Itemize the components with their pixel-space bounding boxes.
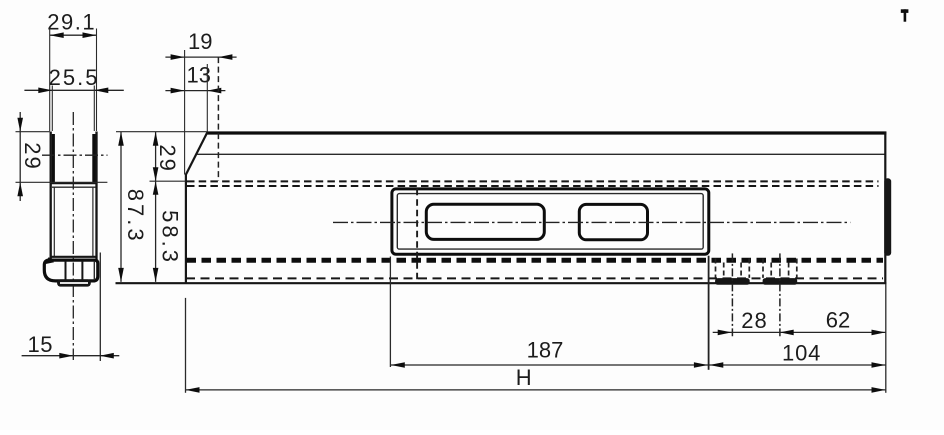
svg-text:29: 29 bbox=[155, 144, 180, 172]
svg-text:19: 19 bbox=[188, 29, 212, 54]
svg-text:29.1: 29.1 bbox=[47, 9, 96, 34]
svg-text:62: 62 bbox=[826, 307, 850, 332]
svg-text:15: 15 bbox=[27, 332, 52, 357]
svg-text:87.3: 87.3 bbox=[123, 189, 148, 244]
svg-text:25.5: 25.5 bbox=[49, 65, 100, 90]
svg-text:58.3: 58.3 bbox=[157, 210, 182, 265]
svg-text:H: H bbox=[516, 365, 532, 390]
svg-text:104: 104 bbox=[782, 340, 821, 365]
svg-text:29: 29 bbox=[20, 142, 45, 170]
svg-text:187: 187 bbox=[527, 338, 564, 363]
svg-text:28: 28 bbox=[741, 308, 767, 333]
